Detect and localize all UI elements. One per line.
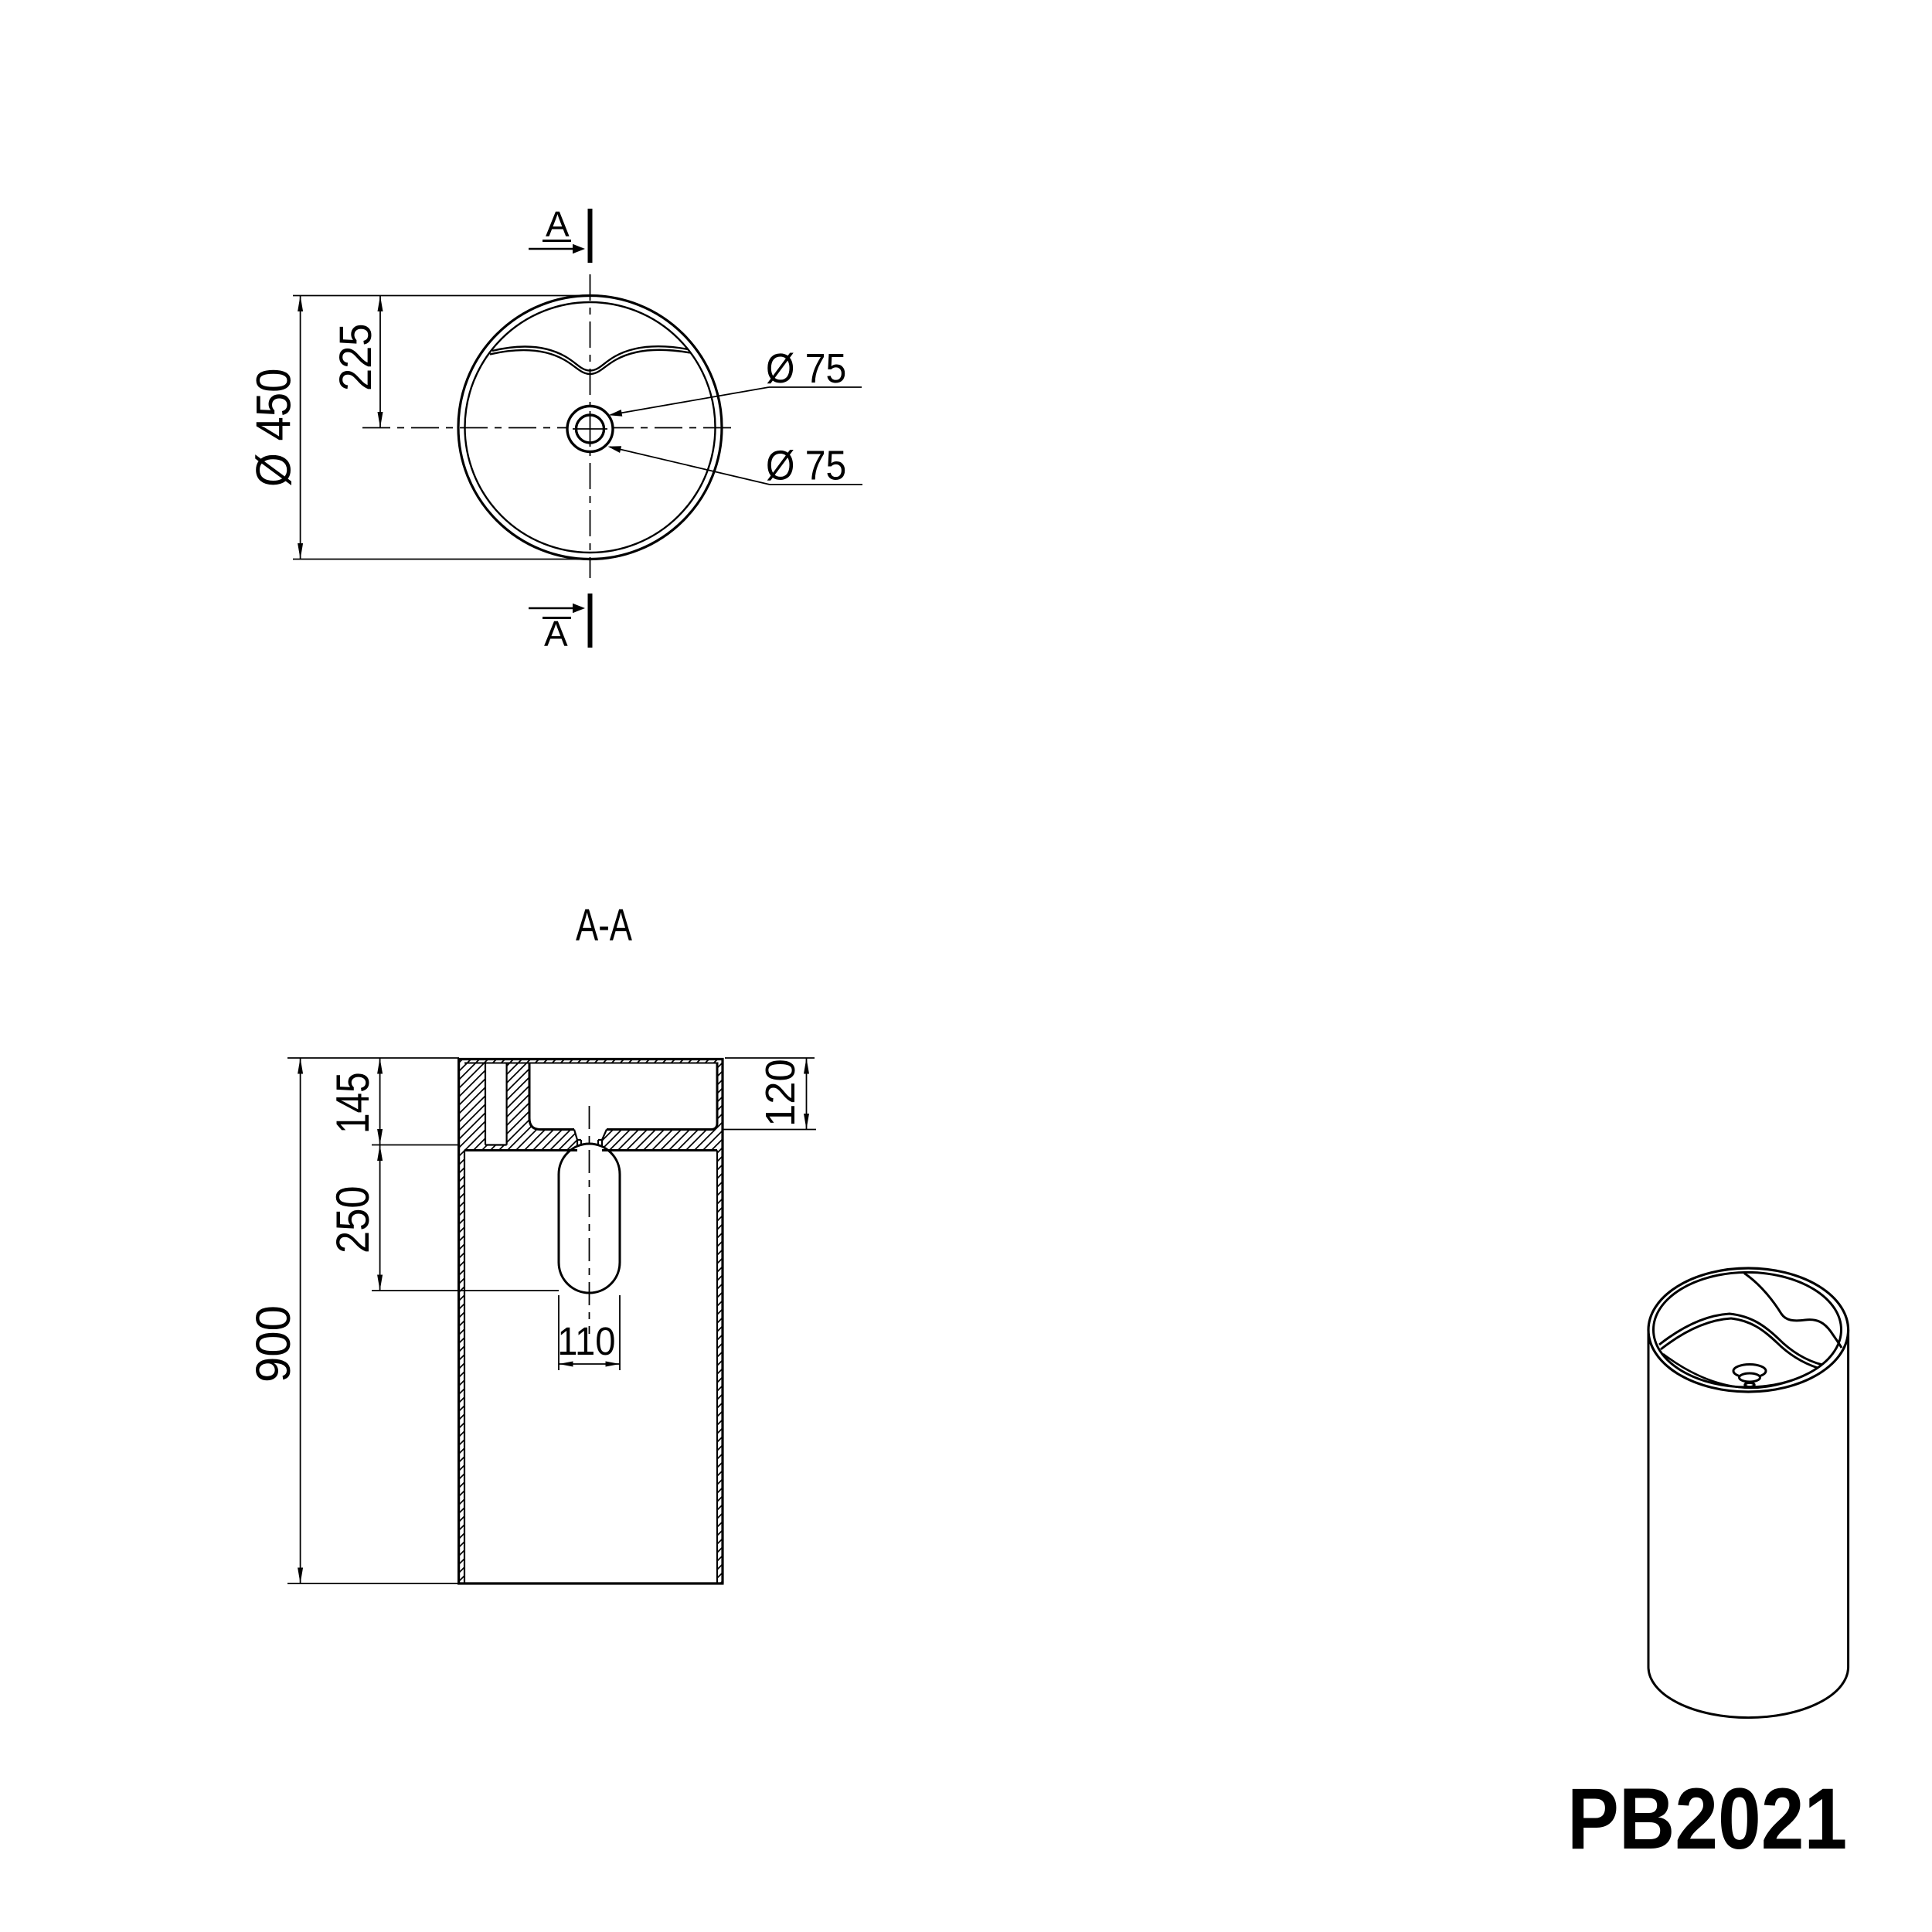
svg-text:Ø 450: Ø 450	[247, 369, 301, 487]
svg-text:110: 110	[557, 1320, 615, 1363]
svg-text:Ø 75: Ø 75	[766, 345, 846, 391]
svg-text:A-A: A-A	[576, 900, 633, 950]
svg-text:A: A	[544, 614, 568, 654]
svg-text:120: 120	[757, 1059, 804, 1127]
svg-text:225: 225	[331, 324, 381, 391]
svg-text:145: 145	[328, 1072, 379, 1134]
svg-text:A: A	[546, 204, 570, 244]
svg-text:900: 900	[247, 1305, 301, 1383]
svg-text:PB2021: PB2021	[1567, 1770, 1847, 1867]
svg-text:250: 250	[327, 1185, 379, 1253]
svg-text:Ø 75: Ø 75	[766, 442, 846, 488]
